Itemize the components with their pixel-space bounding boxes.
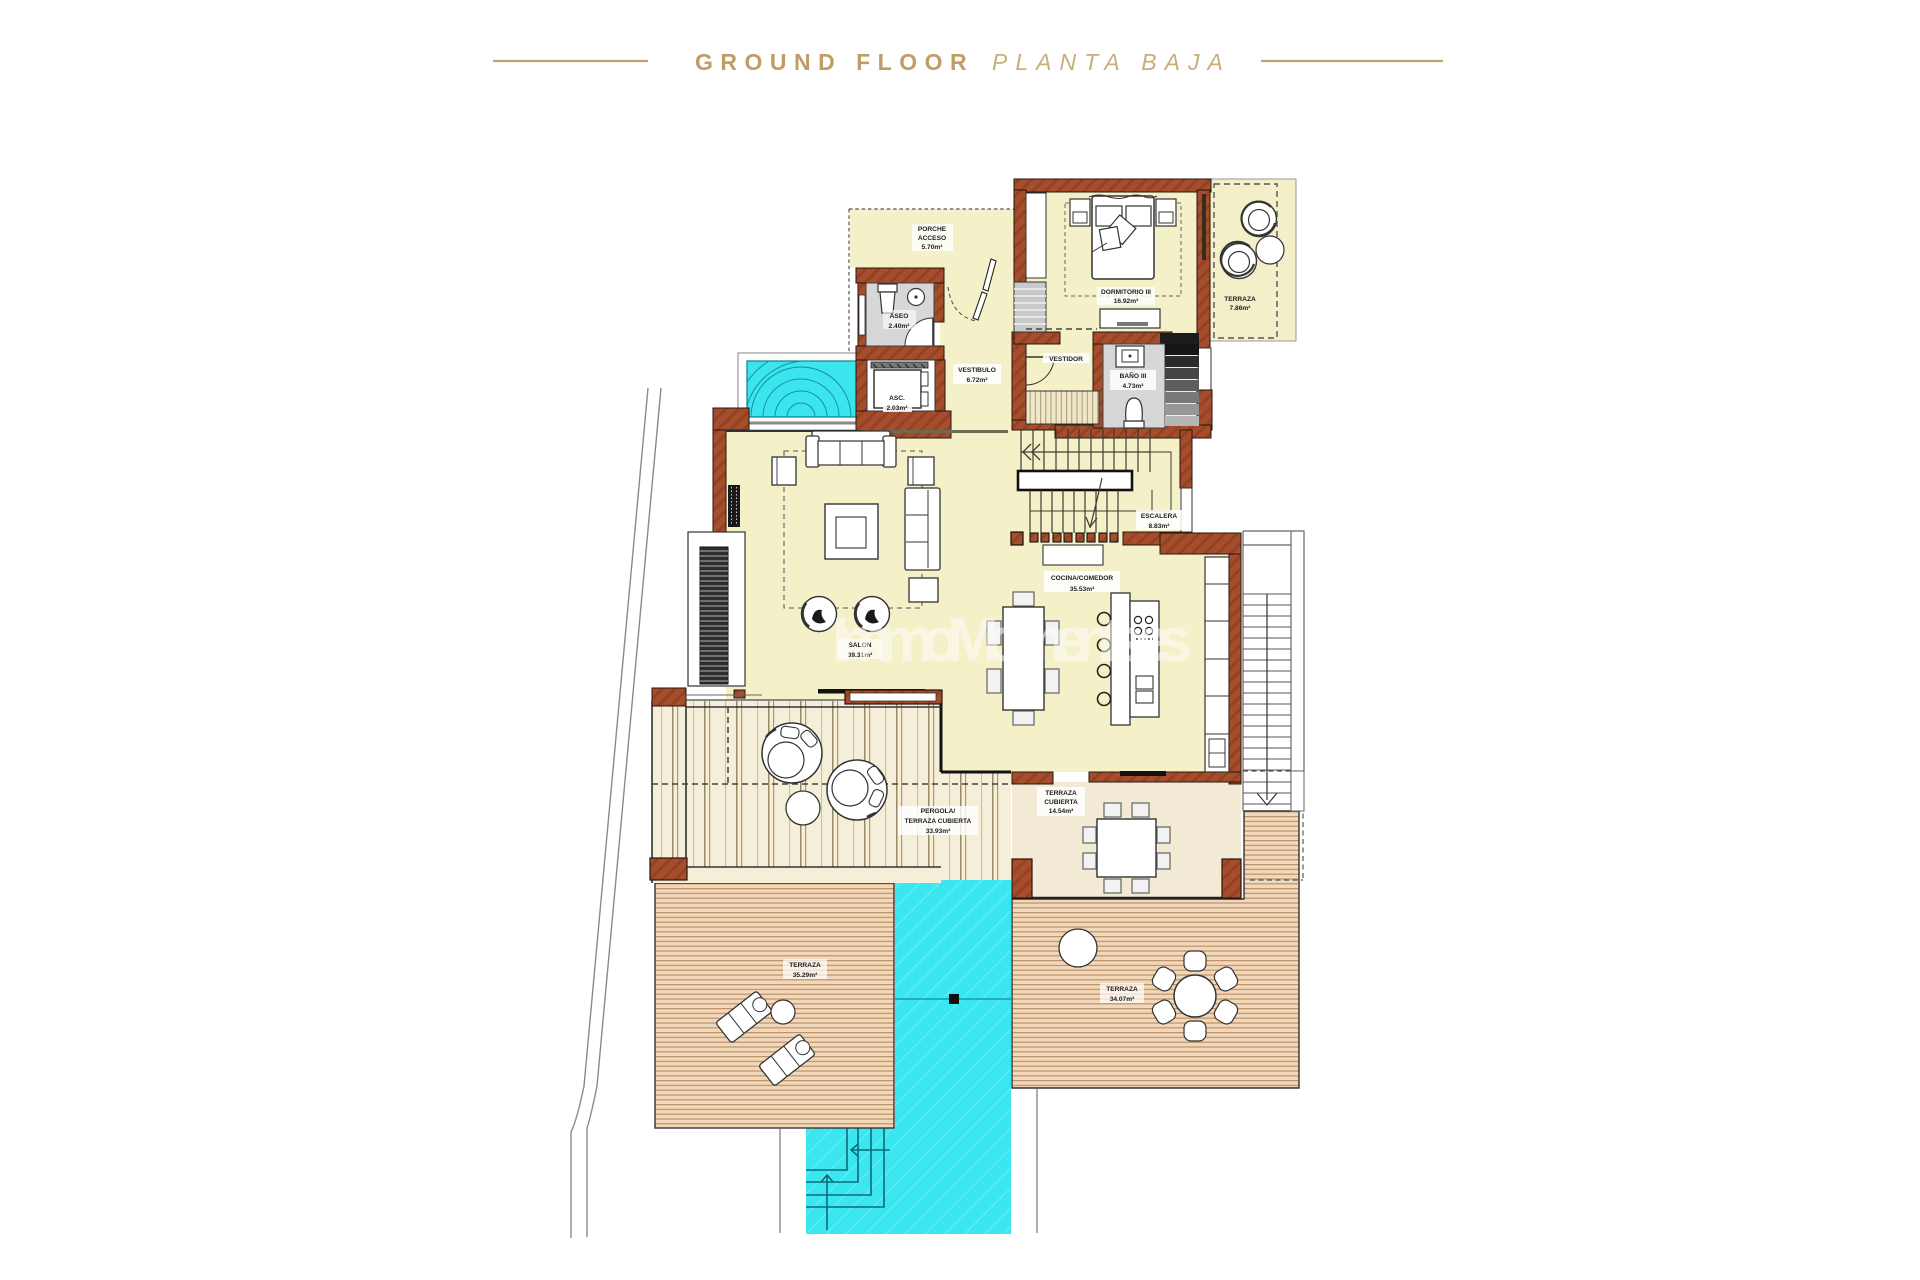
svg-text:2.03m²: 2.03m² <box>887 405 909 412</box>
svg-text:DORMITORIO III: DORMITORIO III <box>1101 289 1151 296</box>
svg-text:PERGOLA/: PERGOLA/ <box>921 808 956 815</box>
svg-text:PLANTA BAJA: PLANTA BAJA <box>992 49 1231 75</box>
svg-text:ASC.: ASC. <box>889 395 905 402</box>
svg-text:VESTIDOR: VESTIDOR <box>1049 356 1083 363</box>
svg-text:34.07m²: 34.07m² <box>1110 996 1135 1003</box>
svg-text:ASEO: ASEO <box>890 313 909 320</box>
svg-text:7.86m²: 7.86m² <box>1230 305 1252 312</box>
svg-text:VESTIBULO: VESTIBULO <box>958 367 996 374</box>
svg-text:BAÑO III: BAÑO III <box>1120 371 1147 380</box>
svg-text:6.72m²: 6.72m² <box>967 377 989 384</box>
svg-text:8.83m²: 8.83m² <box>1149 523 1171 530</box>
svg-text:TERRAZA: TERRAZA <box>1224 296 1256 303</box>
svg-text:ESCALERA: ESCALERA <box>1141 513 1178 520</box>
svg-text:CUBIERTA: CUBIERTA <box>1044 799 1078 806</box>
svg-text:35.29m²: 35.29m² <box>793 972 818 979</box>
svg-text:16.92m²: 16.92m² <box>1114 298 1139 305</box>
svg-text:TERRAZA CUBIERTA: TERRAZA CUBIERTA <box>905 818 972 825</box>
svg-text:35.53m²: 35.53m² <box>1070 586 1095 593</box>
svg-text:COCINA/COMEDOR: COCINA/COMEDOR <box>1051 575 1114 582</box>
svg-text:TERRAZA: TERRAZA <box>1106 986 1138 993</box>
svg-text:4.73m²: 4.73m² <box>1123 383 1145 390</box>
svg-text:ACCESO: ACCESO <box>918 235 946 242</box>
svg-text:33.93m²: 33.93m² <box>926 828 951 835</box>
svg-text:TERRAZA: TERRAZA <box>1045 790 1077 797</box>
svg-text:GROUND FLOOR: GROUND FLOOR <box>695 49 974 75</box>
svg-text:2.40m²: 2.40m² <box>889 323 911 330</box>
svg-text:ImmoMoments.es: ImmoMoments.es <box>832 606 1192 675</box>
svg-text:PORCHE: PORCHE <box>918 226 947 233</box>
svg-text:TERRAZA: TERRAZA <box>789 962 821 969</box>
svg-text:5.70m²: 5.70m² <box>922 244 944 251</box>
svg-text:14.54m²: 14.54m² <box>1049 808 1074 815</box>
